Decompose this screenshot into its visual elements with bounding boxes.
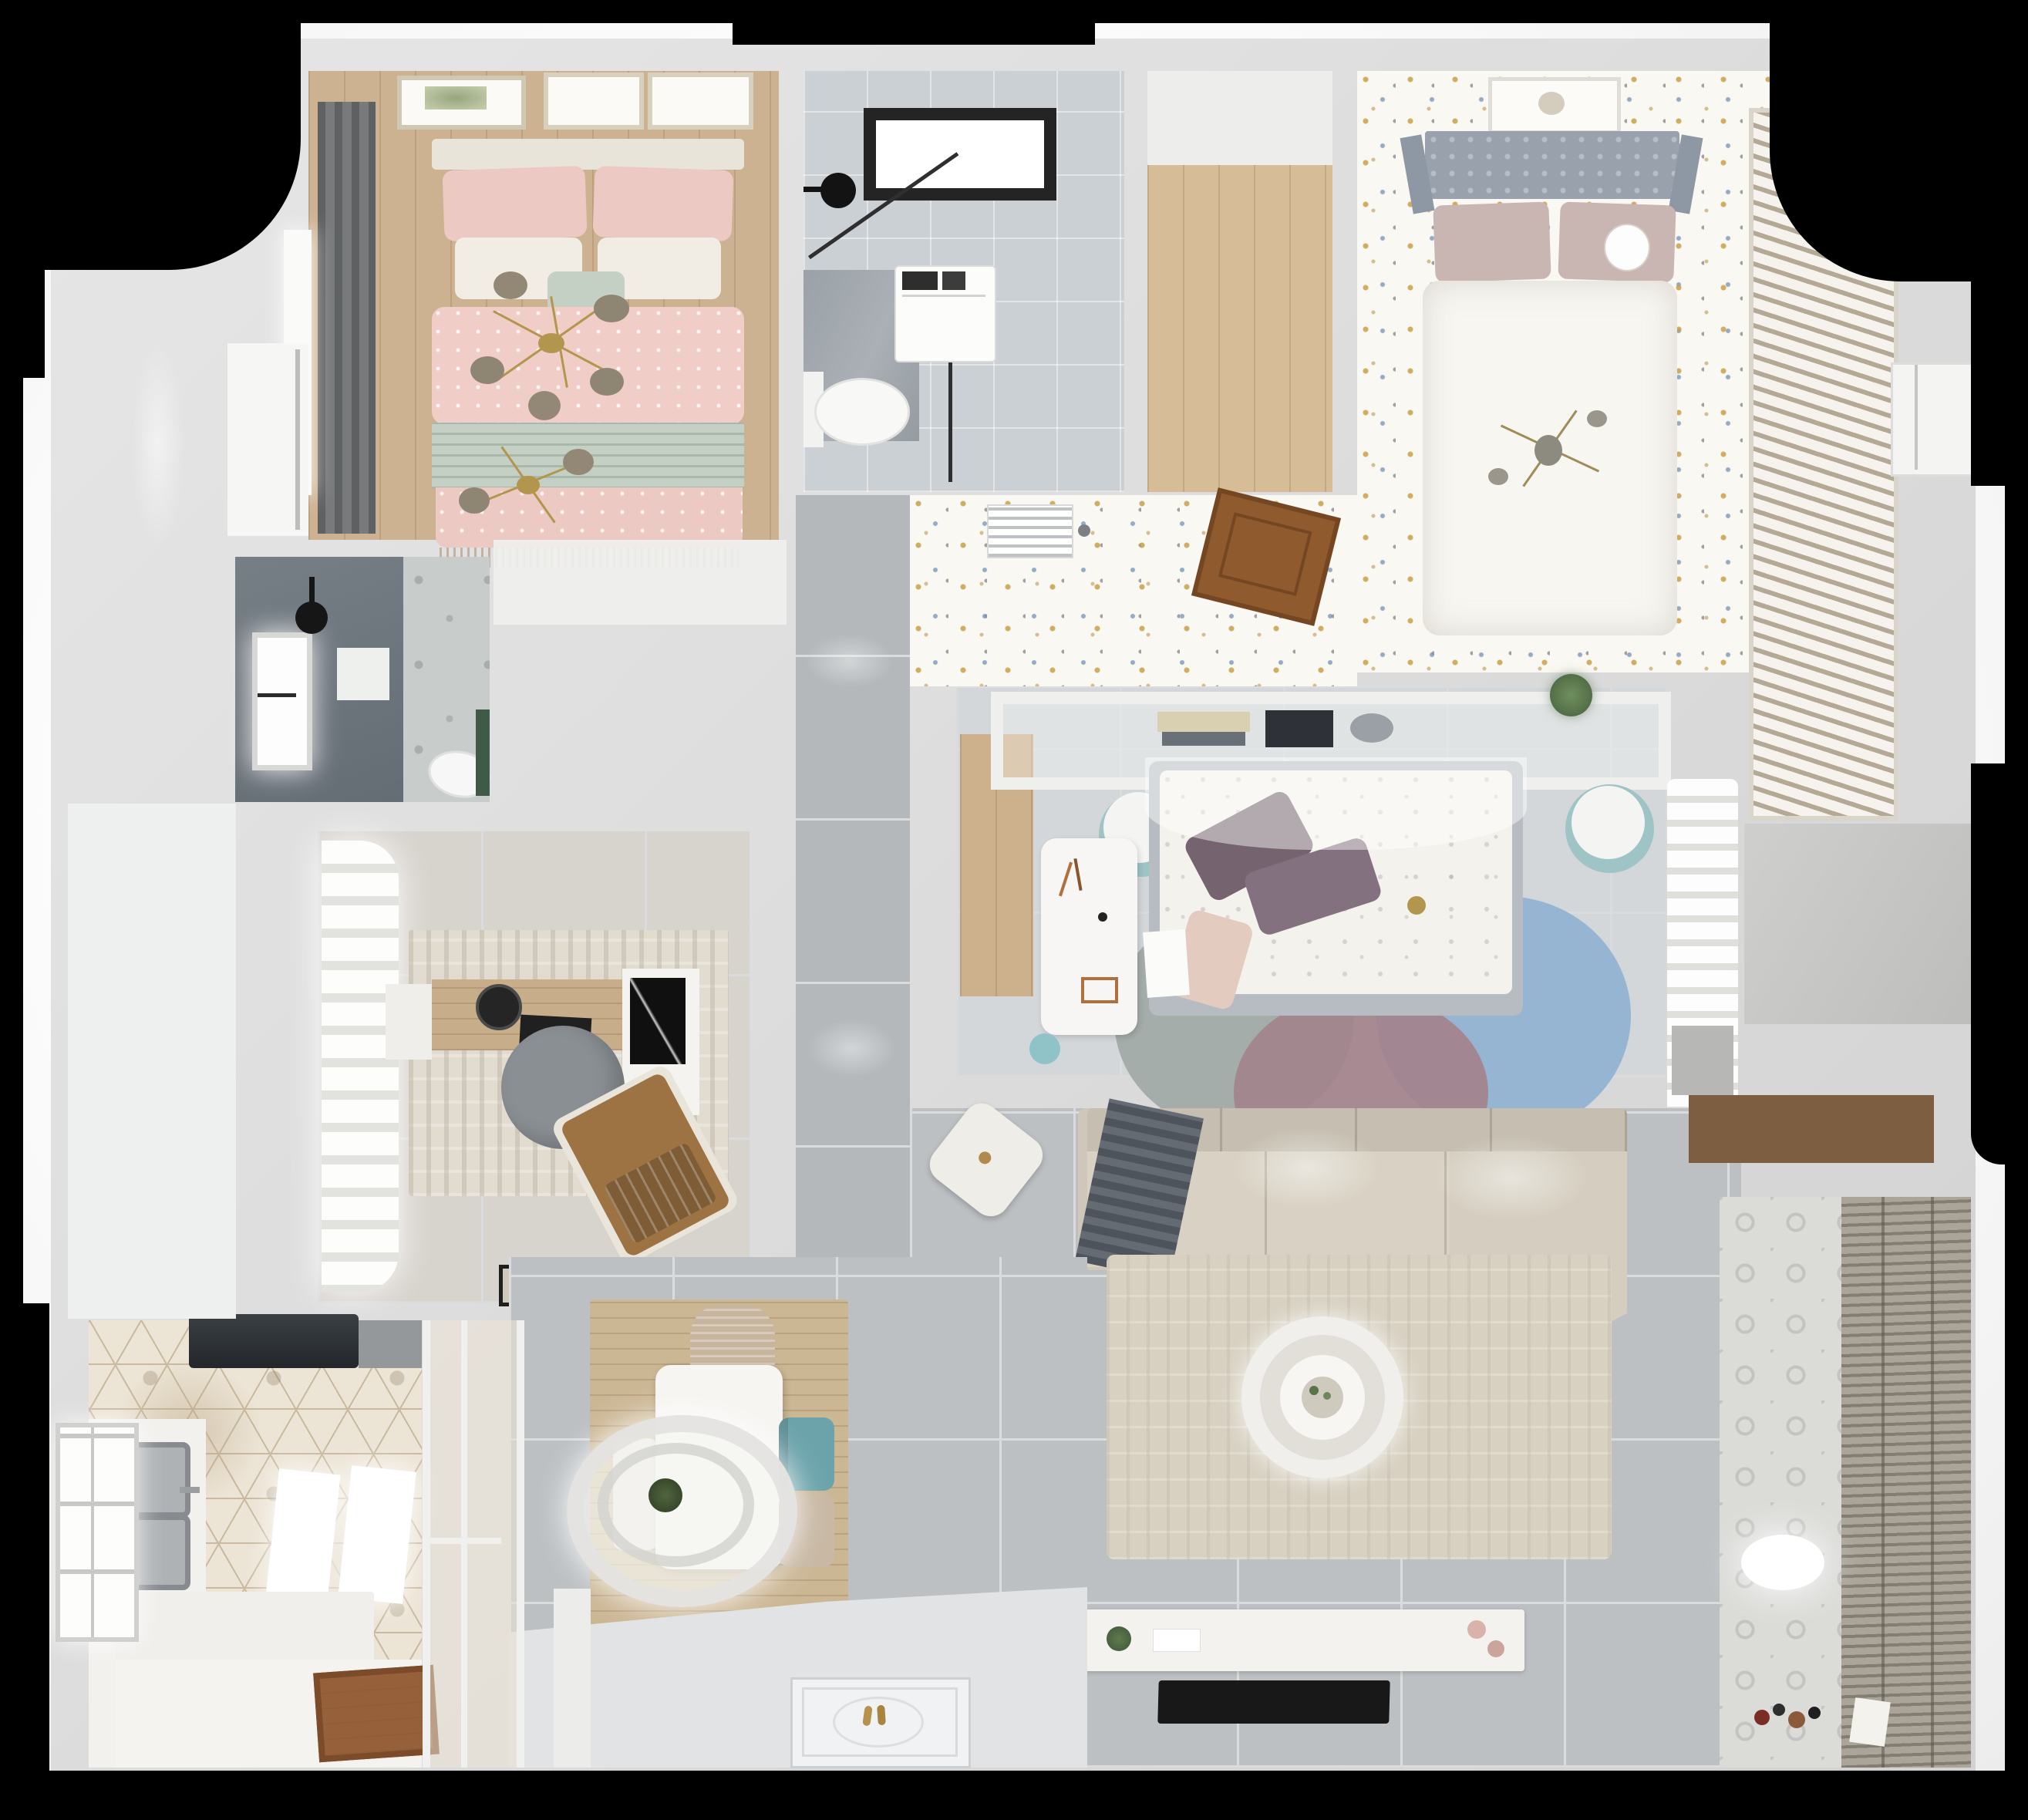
tv-panel xyxy=(1157,1680,1390,1724)
stool-top xyxy=(1572,786,1645,859)
shower-arm xyxy=(803,187,825,192)
pillow-mauve xyxy=(1433,201,1551,282)
desk-plate xyxy=(476,984,522,1030)
matte-right-upper xyxy=(1971,231,2028,486)
ac-vent xyxy=(987,504,1073,558)
washing-machine xyxy=(894,265,996,362)
matte-bottom xyxy=(0,1771,2028,1820)
pillow-blush xyxy=(592,166,733,241)
matte-top-strip xyxy=(733,0,1095,45)
book xyxy=(1162,732,1245,746)
washer-label xyxy=(902,295,985,297)
leaf xyxy=(594,295,629,322)
light-pool xyxy=(807,1020,896,1077)
console-box xyxy=(1153,1629,1201,1652)
frame-art xyxy=(1538,92,1565,115)
gold-shoe xyxy=(877,1705,886,1726)
washer-controls xyxy=(902,271,938,290)
room-bedroom-top-left xyxy=(308,71,779,540)
white-desk xyxy=(1041,838,1137,1035)
plant-pot xyxy=(1107,1626,1131,1651)
wall-frame xyxy=(397,76,526,130)
exterior-shaft xyxy=(1744,824,1972,1024)
toy xyxy=(1788,1711,1805,1728)
wall-highlight xyxy=(494,540,787,625)
closet-wood-floor xyxy=(1147,165,1332,492)
shower-head xyxy=(295,602,328,634)
gold-deco xyxy=(1407,896,1426,915)
book xyxy=(1157,712,1250,732)
plant-sprig xyxy=(1309,1386,1319,1395)
blind-rail xyxy=(1881,1197,1885,1768)
headboard xyxy=(1425,131,1679,199)
glass-slider xyxy=(423,1320,524,1768)
sputnik-small xyxy=(1488,395,1612,503)
table-center xyxy=(1302,1377,1343,1418)
room-corridor xyxy=(796,495,910,1311)
sputnik-chandelier xyxy=(470,264,632,426)
toy xyxy=(1754,1710,1770,1725)
door-leaf-line xyxy=(1915,365,1918,470)
vent-pipe xyxy=(1078,524,1090,537)
toys xyxy=(1754,1702,1839,1733)
bulb xyxy=(517,476,540,494)
room-dining xyxy=(509,1257,1087,1768)
coffee-table xyxy=(1241,1316,1403,1478)
toilet xyxy=(814,378,910,446)
pillow-blush xyxy=(442,166,587,241)
desk-side-panel xyxy=(386,984,432,1060)
wood-shelf xyxy=(1689,1095,1934,1163)
green-accent xyxy=(476,709,490,796)
matte-right-lower xyxy=(1971,763,2028,1164)
faucet xyxy=(180,1487,200,1493)
mullion xyxy=(258,693,296,697)
knob xyxy=(1098,912,1107,922)
plant xyxy=(1550,674,1592,716)
room-master-bedroom xyxy=(956,688,1666,1077)
wall-highlight xyxy=(68,804,236,1319)
skylight xyxy=(864,108,1056,201)
leaf xyxy=(563,449,594,475)
niche-shelf xyxy=(337,648,389,700)
door-panel xyxy=(1218,512,1312,596)
shower-head xyxy=(820,173,856,208)
room-closet xyxy=(1147,71,1332,492)
leaf xyxy=(459,487,490,514)
pink-cup xyxy=(1467,1620,1486,1639)
french-window xyxy=(56,1423,139,1642)
wood-door-panel xyxy=(313,1665,440,1763)
slider-mullion xyxy=(461,1320,467,1768)
door-leaf-line xyxy=(295,349,300,530)
bulb xyxy=(1534,435,1562,466)
headboard xyxy=(432,139,744,170)
bowl xyxy=(1350,713,1393,743)
niche-door xyxy=(1891,362,1979,477)
partition-stub xyxy=(554,1589,591,1768)
room-balcony xyxy=(1720,1197,1971,1768)
door-recess xyxy=(227,343,308,536)
copper-pen xyxy=(1059,862,1073,897)
pillow-round-deco xyxy=(1604,224,1650,271)
copper-pen xyxy=(1073,858,1082,891)
paper-bag xyxy=(1849,1697,1891,1747)
floorplan-render xyxy=(0,0,2028,1820)
room-bedroom-top-right xyxy=(1357,71,1812,672)
laptop xyxy=(1265,710,1333,747)
washer-controls xyxy=(942,271,965,290)
pink-cup xyxy=(1487,1640,1504,1657)
bulb xyxy=(538,333,564,353)
wall-frame xyxy=(1488,77,1621,134)
square-chair xyxy=(922,1096,1050,1224)
wall-frame xyxy=(648,72,753,130)
canopy-gauze xyxy=(1145,757,1527,850)
blind-rail xyxy=(1931,1197,1934,1768)
leaf xyxy=(494,271,527,299)
leaf xyxy=(470,356,504,384)
sputnik-chandelier-2 xyxy=(459,433,598,538)
counter-top-gray xyxy=(359,1320,422,1368)
window xyxy=(252,632,312,770)
teal-cup xyxy=(1029,1033,1060,1064)
leaf xyxy=(528,391,561,420)
slider-mullion xyxy=(430,1538,501,1544)
light-panel xyxy=(265,1468,340,1603)
toy xyxy=(1808,1707,1821,1719)
art-black xyxy=(630,978,686,1064)
light-panel xyxy=(338,1465,416,1604)
frame-art xyxy=(425,86,487,110)
range-hood xyxy=(189,1314,359,1368)
gold-deco xyxy=(976,1149,993,1166)
room-bathroom-top xyxy=(803,71,1124,492)
matte-top-left xyxy=(0,0,301,270)
venetian-blinds xyxy=(1841,1197,1971,1768)
wall-frame xyxy=(544,72,644,130)
tv-console xyxy=(1083,1609,1524,1671)
pendant-lamp xyxy=(567,1415,797,1607)
matte-left-bottom xyxy=(0,1303,49,1774)
gray-niche xyxy=(1672,1026,1733,1095)
centerpiece-plant xyxy=(648,1478,682,1512)
leaf xyxy=(590,368,624,396)
plant-sprig xyxy=(1323,1392,1331,1400)
white-curtain xyxy=(322,841,399,1292)
teal-stool xyxy=(1565,784,1654,873)
leaf xyxy=(1488,468,1508,485)
chair-beige-top xyxy=(690,1305,775,1373)
toy xyxy=(1773,1704,1785,1716)
light-pool xyxy=(805,634,894,688)
copper-rack xyxy=(1081,977,1118,1003)
leaf xyxy=(1587,410,1607,427)
shower-arm xyxy=(309,577,315,603)
entry-doormat xyxy=(790,1677,971,1768)
ceiling-lamp xyxy=(1741,1535,1824,1590)
curtain xyxy=(318,102,376,534)
room-bathroom-left xyxy=(235,557,490,802)
matte-left-strip xyxy=(0,254,45,378)
paper xyxy=(1143,929,1190,998)
room-study xyxy=(318,831,750,1303)
